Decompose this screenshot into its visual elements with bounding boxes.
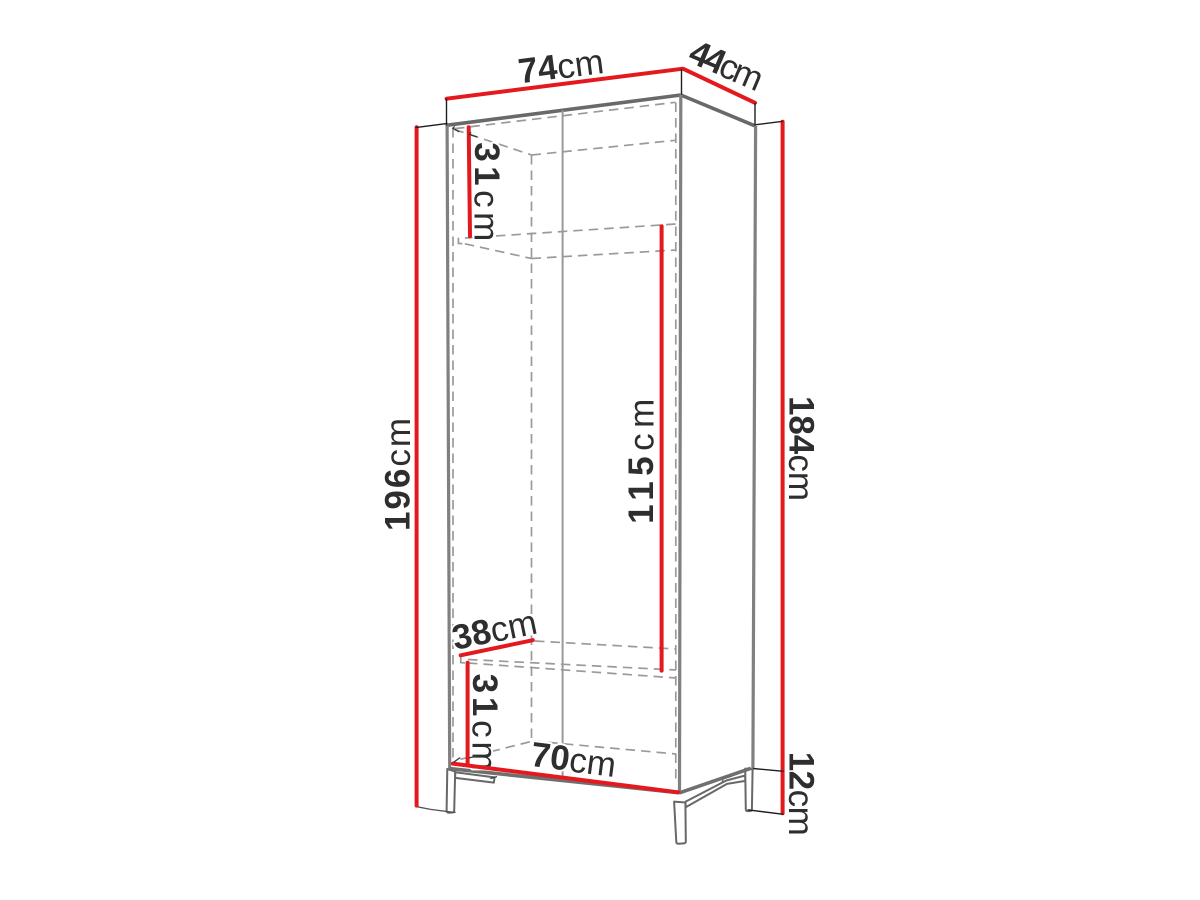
svg-text:31cm: 31cm: [467, 142, 506, 246]
svg-text:184cm: 184cm: [782, 396, 821, 501]
svg-text:115cm: 115cm: [622, 393, 661, 524]
svg-text:31cm: 31cm: [465, 674, 504, 775]
svg-text:12cm: 12cm: [782, 752, 821, 836]
svg-text:196cm: 196cm: [379, 416, 418, 531]
